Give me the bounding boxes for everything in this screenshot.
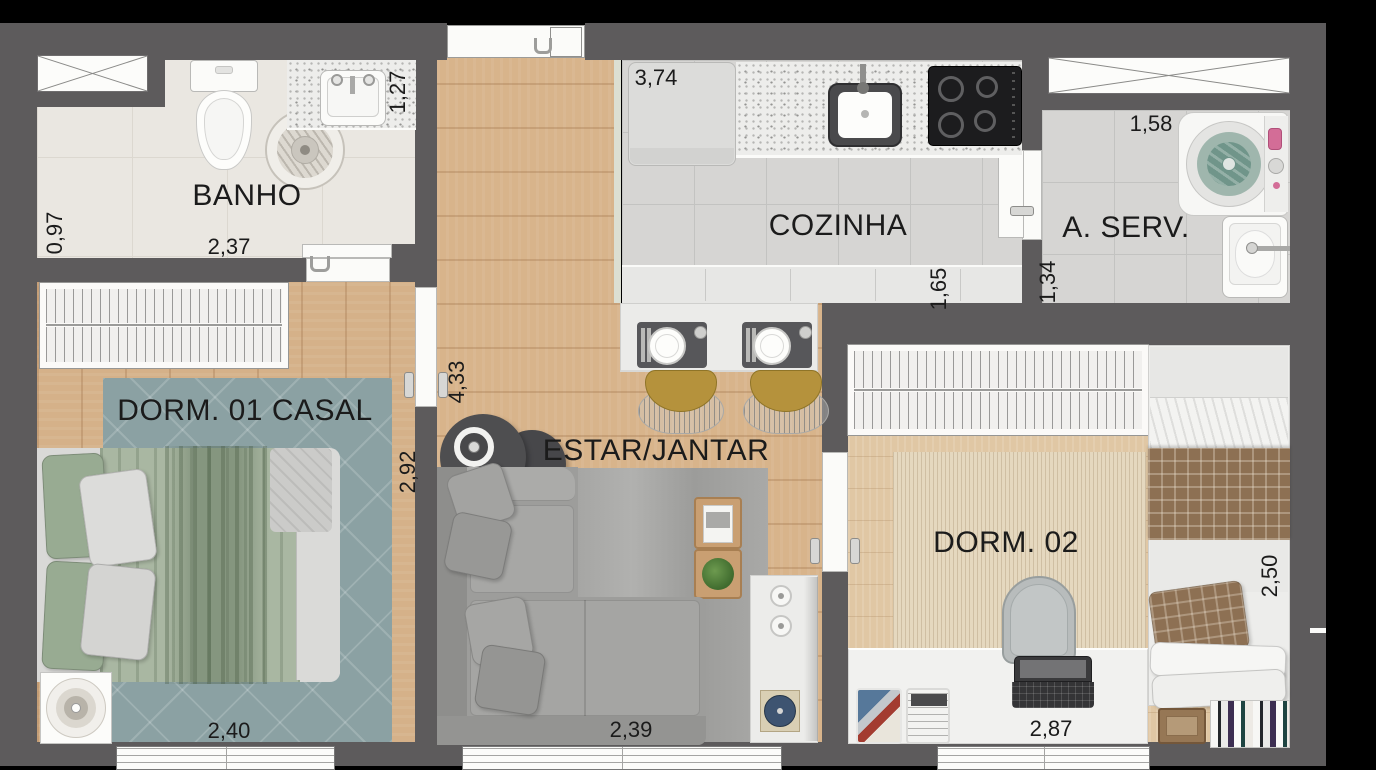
bed-pillow-gray-1 xyxy=(78,468,158,569)
aserv-window xyxy=(1048,57,1290,94)
dorm2-wardrobe xyxy=(848,345,1148,435)
sofa-pillow-2 xyxy=(442,510,513,581)
aserv-door-leaf xyxy=(998,150,1024,238)
wall-right xyxy=(1290,23,1326,745)
washer-knob-pink xyxy=(1268,128,1282,150)
floor-plan: BANHO COZINHA A. SERV. DORM. 01 CASAL ES… xyxy=(0,0,1376,770)
estar-window xyxy=(462,746,782,770)
dimension-tick xyxy=(1310,628,1326,633)
entry-door-leaf xyxy=(550,27,582,57)
magazine-white xyxy=(906,688,950,744)
dim-dorm1-depth: 2,92 xyxy=(396,437,420,507)
bar-stool-2 xyxy=(743,370,829,434)
wall-dorm2-west-lower xyxy=(822,572,848,745)
dorm2-door-handle xyxy=(810,538,820,564)
dim-dorm2-width: 2,87 xyxy=(1016,717,1086,741)
dorm1-door-leaf xyxy=(415,287,437,407)
plaid-blanket xyxy=(1148,448,1290,540)
dim-dorm2-depth: 2,50 xyxy=(1258,541,1282,611)
dim-aserv-depth: 1,34 xyxy=(1036,247,1060,317)
dorm1-window xyxy=(116,746,335,770)
dim-banho-side: 1,27 xyxy=(386,57,410,127)
bed-pillow-gray-2 xyxy=(79,563,156,662)
kitchen-cabinets xyxy=(622,265,1028,303)
plant xyxy=(702,558,734,590)
shaft-window xyxy=(37,55,148,92)
dim-cozinha-width: 3,74 xyxy=(621,66,691,90)
wall-banho-jamb xyxy=(390,244,415,282)
label-dorm2: DORM. 02 xyxy=(933,526,1079,560)
dorm2-door-leaf xyxy=(822,452,848,572)
dim-dorm1-width: 2,40 xyxy=(194,719,264,743)
label-banho: BANHO xyxy=(192,179,301,213)
dorm2-door-handle-inner xyxy=(850,538,860,564)
dim-cozinha-depth: 1,65 xyxy=(927,254,951,324)
entry-door-handle xyxy=(534,38,552,54)
wall-hall-west-upper xyxy=(415,55,437,287)
dorm2-window xyxy=(937,746,1150,770)
label-aserv: A. SERV. xyxy=(1062,211,1189,245)
bar-stool-1 xyxy=(638,370,724,434)
sofa-pillow-4 xyxy=(473,643,546,716)
label-estar: ESTAR/JANTAR xyxy=(543,434,770,468)
aserv-door-handle xyxy=(1010,206,1034,216)
wall-dorm2-north xyxy=(822,303,1326,347)
book-row xyxy=(1210,700,1290,748)
banho-door-handle xyxy=(310,256,330,272)
wall-banho-south xyxy=(37,258,306,282)
wall-left xyxy=(0,23,37,745)
magazine-color xyxy=(856,688,902,744)
dorm1-wardrobe xyxy=(40,283,288,368)
dim-banho-width: 2,37 xyxy=(194,235,264,259)
dorm1-door-handle xyxy=(404,372,414,398)
dim-estar-width: 2,39 xyxy=(596,718,666,742)
aserv-door-threshold xyxy=(1022,150,1042,240)
label-cozinha: COZINHA xyxy=(769,209,908,243)
floor-transition-strip xyxy=(614,58,621,303)
dim-hall-length: 4,33 xyxy=(445,347,469,417)
dim-aserv-width: 1,58 xyxy=(1116,112,1186,136)
label-dorm1: DORM. 01 CASAL xyxy=(117,394,372,428)
dim-banho-depth: 0,97 xyxy=(43,198,67,268)
